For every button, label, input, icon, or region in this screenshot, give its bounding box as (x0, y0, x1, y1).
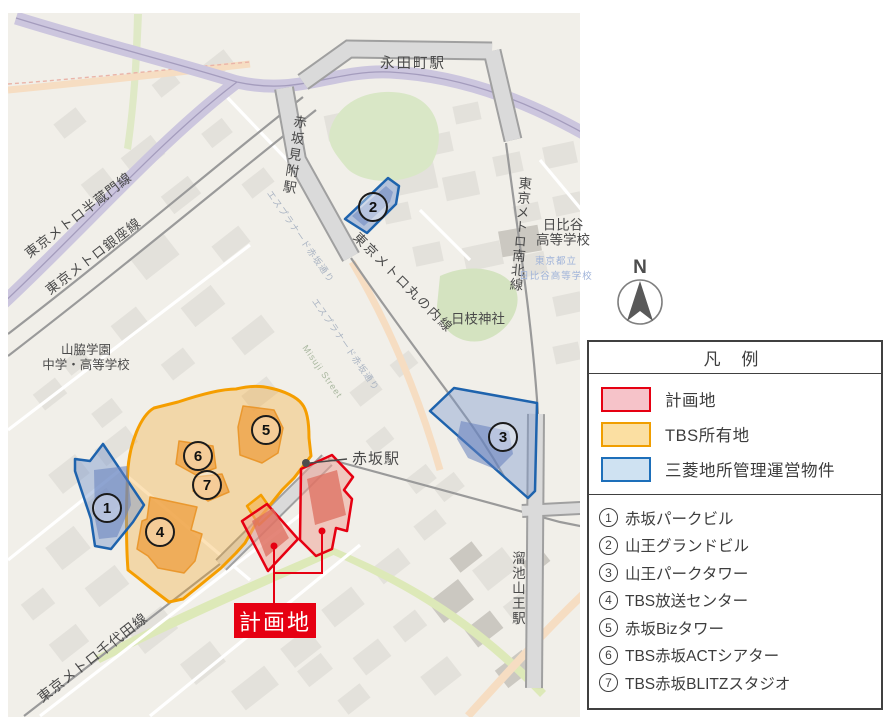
building-name: TBS赤坂ACTシアター (625, 644, 779, 666)
label-hie-shrine: 日枝神社 (451, 312, 505, 329)
building-name: 山王グランドビル (625, 534, 749, 556)
compass-north-label: N (616, 258, 664, 278)
building-list-item: 5 赤坂Bizタワー (599, 614, 871, 642)
planned-site-swatch (601, 387, 651, 412)
legend-item-tbs-land: TBS所有地 (601, 421, 869, 447)
building-list-item: 7 TBS赤坂BLITZスタジオ (599, 669, 871, 697)
map-marker-4: 4 (145, 517, 175, 547)
compass: N (616, 258, 664, 330)
building-name: 赤坂パークビル (625, 507, 734, 529)
label-nagatacho-station: 永田町駅 (380, 55, 446, 73)
building-list-item: 4 TBS放送センター (599, 587, 871, 615)
legend-building-list: 1 赤坂パークビル 2 山王グランドビル 3 山王パークタワー 4 TBS放送セ… (589, 495, 881, 706)
building-number-badge: 3 (599, 563, 618, 582)
label-yamawaki-1: 山脇学園 (61, 343, 111, 359)
legend-item-mitsubishi: 三菱地所管理運営物件 (601, 456, 869, 482)
label-hibiya-hs-2: 高等学校 (536, 233, 590, 250)
figure-akasaka-area-map: 永田町駅 赤坂見附駅 東京メトロ南北線 溜池山王駅 東京メトロ半蔵門線 東京メト… (0, 0, 892, 722)
map-marker-6: 6 (183, 441, 213, 471)
legend-panel: 凡 例 計画地 TBS所有地 三菱地所管理運営物件 1 赤坂パークビル 2 山王… (587, 340, 883, 710)
legend-swatches: 計画地 TBS所有地 三菱地所管理運営物件 (589, 374, 881, 495)
map-marker-5: 5 (251, 415, 281, 445)
legend-item-label: 三菱地所管理運営物件 (665, 457, 835, 481)
label-hibiya-small-2: 日比谷高等学校 (519, 271, 593, 283)
label-tameike-sanno-station: 溜池山王駅 (508, 551, 525, 626)
building-list-item: 6 TBS赤坂ACTシアター (599, 642, 871, 670)
building-name: TBS放送センター (625, 589, 748, 611)
building-number-badge: 6 (599, 646, 618, 665)
building-number-badge: 2 (599, 536, 618, 555)
building-number-badge: 4 (599, 591, 618, 610)
building-name: TBS赤坂BLITZスタジオ (625, 672, 790, 694)
map-marker-3: 3 (488, 422, 518, 452)
building-number-badge: 1 (599, 508, 618, 527)
label-akasaka-station: 赤坂駅 (352, 451, 400, 470)
label-hibiya-small-1: 東京都立 (535, 256, 577, 268)
tbs-land-swatch (601, 422, 651, 447)
building-name: 赤坂Bizタワー (625, 617, 724, 639)
building-name: 山王パークタワー (625, 562, 748, 584)
legend-title: 凡 例 (589, 342, 881, 374)
compass-rose-icon (616, 278, 664, 326)
mitsubishi-swatch (601, 457, 651, 482)
map-marker-1: 1 (92, 493, 122, 523)
legend-item-label: TBS所有地 (665, 422, 750, 446)
map-marker-7: 7 (192, 470, 222, 500)
legend-item-label: 計画地 (665, 387, 716, 411)
label-yamawaki-2: 中学・高等学校 (42, 358, 130, 374)
planned-site-callout: 計画地 (234, 603, 316, 638)
building-list-item: 3 山王パークタワー (599, 559, 871, 587)
map-marker-2: 2 (358, 192, 388, 222)
building-list-item: 2 山王グランドビル (599, 532, 871, 560)
legend-item-planned-site: 計画地 (601, 386, 869, 412)
building-number-badge: 5 (599, 618, 618, 637)
building-list-item: 1 赤坂パークビル (599, 504, 871, 532)
building-number-badge: 7 (599, 673, 618, 692)
